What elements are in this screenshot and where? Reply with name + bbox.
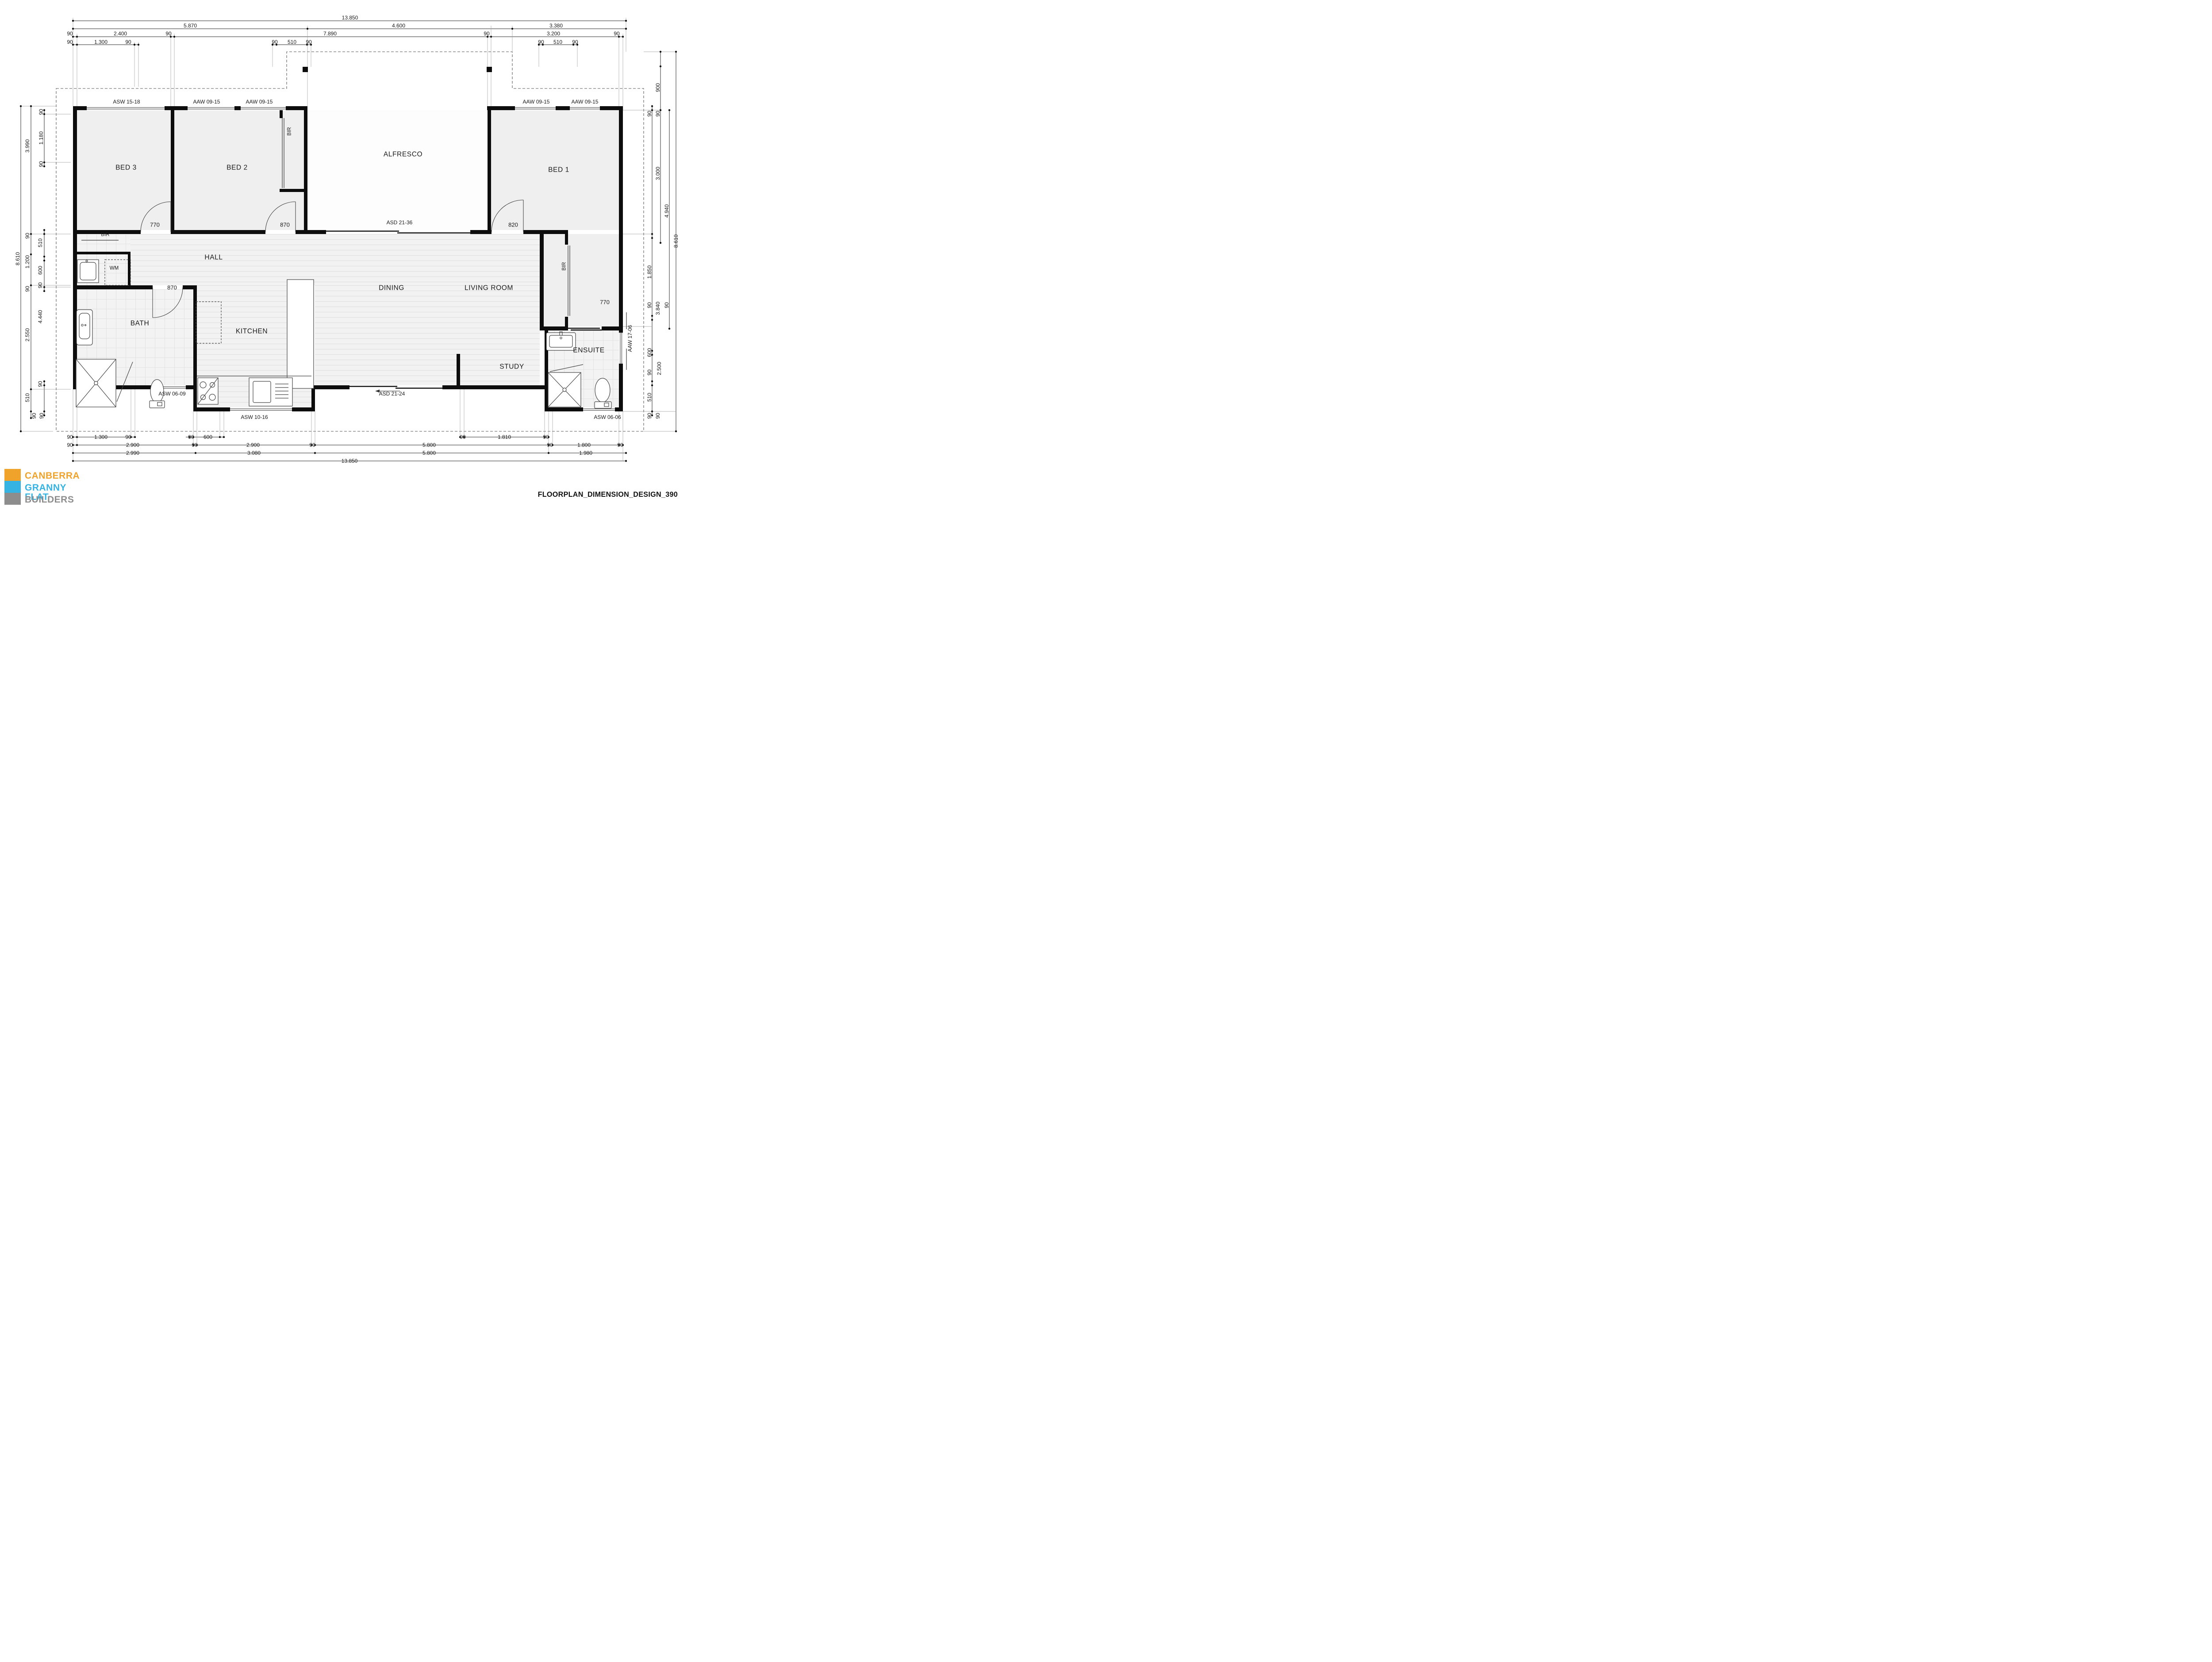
window-label-aaw-09-15: AAW 09-15 <box>572 99 599 104</box>
logo-block-blue <box>4 481 21 493</box>
dim-label-90: 90 <box>647 369 652 375</box>
annotation-layer: BED 3BED 2ALFRESCOBED 1HALLDININGLIVING … <box>0 0 684 507</box>
dim-label-2-900: 2.900 <box>246 442 260 448</box>
dim-label-900: 900 <box>655 83 661 92</box>
dim-label-1-800: 1.800 <box>577 442 591 448</box>
dim-label-3-380: 3.380 <box>549 23 563 28</box>
dim-label-90: 90 <box>547 442 553 448</box>
room-label-study: STUDY <box>499 363 524 370</box>
dim-label-90: 90 <box>306 39 311 45</box>
window-label-asd-21-24: ASD 21-24 <box>379 391 405 396</box>
dim-label-600: 600 <box>38 266 43 275</box>
window-label-aaw-09-15: AAW 09-15 <box>193 99 220 104</box>
door-label-820: 820 <box>508 222 518 228</box>
room-label-bed-2: BED 2 <box>227 164 248 171</box>
door-label-870: 870 <box>280 222 290 228</box>
logo-line-3: BUILDERS <box>25 495 74 504</box>
dim-label-4-940: 4.940 <box>664 204 669 218</box>
dim-label-90: 90 <box>460 434 465 440</box>
dim-label-90: 90 <box>309 442 315 448</box>
dim-label-3-990: 3.990 <box>25 139 30 153</box>
dim-label-5-800: 5.800 <box>422 450 436 456</box>
room-label-bed-3: BED 3 <box>115 164 137 171</box>
room-label-dining: DINING <box>379 284 404 292</box>
dim-label-90: 90 <box>572 39 578 45</box>
dim-label-90: 90 <box>614 31 619 36</box>
dim-label-90: 90 <box>538 39 544 45</box>
dim-label-510: 510 <box>553 39 562 45</box>
dim-label-2-500: 2.500 <box>657 362 662 375</box>
room-label-bed-1: BED 1 <box>548 166 569 173</box>
dim-label-90: 90 <box>664 302 669 308</box>
dim-label-90: 90 <box>647 111 652 116</box>
window-label-aaw-09-15: AAW 09-15 <box>246 99 273 104</box>
dim-label-90: 90 <box>67 31 73 36</box>
window-label-aaw-17-06: AAW 17-06 <box>627 325 633 352</box>
dim-label-90: 90 <box>272 39 277 45</box>
dim-label-90: 90 <box>125 434 131 440</box>
dim-label-90: 90 <box>39 413 44 418</box>
dim-label-4-600: 4.600 <box>392 23 405 28</box>
dim-label-1-180: 1.180 <box>38 131 44 145</box>
dim-label-600: 600 <box>204 434 212 440</box>
dim-label-5-800: 5.800 <box>422 442 436 448</box>
dim-label-510: 510 <box>25 393 30 402</box>
dim-label-3-200: 3.200 <box>547 31 560 36</box>
floorplan-page: BED 3BED 2ALFRESCOBED 1HALLDININGLIVING … <box>0 0 684 507</box>
dim-label-90: 90 <box>647 413 652 418</box>
dim-label-90: 90 <box>165 31 171 36</box>
dim-label-90: 90 <box>647 302 652 308</box>
logo-block-gray <box>4 493 21 505</box>
dim-label-3-000: 3.000 <box>655 167 661 180</box>
dim-label-90: 90 <box>655 413 661 418</box>
fixture-label-bir: BIR <box>101 232 109 238</box>
dim-label-1-980: 1.980 <box>579 450 592 456</box>
dim-label-90: 90 <box>484 31 489 36</box>
window-label-asd-21-36: ASD 21-36 <box>387 220 413 225</box>
dim-label-90: 90 <box>38 161 44 167</box>
dim-label-8-610: 8.610 <box>673 234 679 248</box>
dim-label-510: 510 <box>647 393 652 402</box>
window-label-asw-06-09: ASW 06-09 <box>158 391 185 396</box>
drawing-title: FLOORPLAN_DIMENSION_DESIGN_390 <box>517 490 678 499</box>
dim-label-90: 90 <box>617 442 623 448</box>
room-label-bath: BATH <box>131 320 150 327</box>
room-label-hall: HALL <box>204 254 223 261</box>
dim-label-1-300: 1.300 <box>94 39 108 45</box>
fixture-label-bir: BIR <box>287 127 292 135</box>
door-label-870: 870 <box>167 285 177 291</box>
dim-label-8-610: 8.610 <box>15 252 20 265</box>
dim-label-90: 90 <box>38 109 44 115</box>
dim-label-1-300: 1.300 <box>94 434 108 440</box>
room-label-ensuite: ENSUITE <box>573 347 604 354</box>
window-label-asw-06-06: ASW 06-06 <box>594 415 621 420</box>
room-label-alfresco: ALFRESCO <box>384 151 422 158</box>
dim-label-90: 90 <box>655 111 661 116</box>
dim-label-1-200: 1.200 <box>25 255 30 269</box>
room-label-living-room: LIVING ROOM <box>465 284 513 292</box>
dim-label-90: 90 <box>38 282 43 288</box>
dim-label-3-080: 3.080 <box>247 450 261 456</box>
dim-label-7-890: 7.890 <box>323 31 337 36</box>
dim-label-90: 90 <box>125 39 131 45</box>
door-label-770: 770 <box>600 299 610 305</box>
dim-label-13-850: 13.850 <box>342 458 358 464</box>
dim-label-510: 510 <box>288 39 296 45</box>
room-label-kitchen: KITCHEN <box>236 328 268 335</box>
dim-label-3-840: 3.840 <box>655 302 661 315</box>
dim-label-90: 90 <box>67 442 73 448</box>
dim-label-2-550: 2.550 <box>25 328 30 342</box>
window-label-asw-15-18: ASW 15-18 <box>113 99 140 104</box>
dim-label-90: 90 <box>188 434 194 440</box>
dim-label-90: 90 <box>543 434 549 440</box>
dim-label-2-990: 2.990 <box>126 450 139 456</box>
dim-label-90: 90 <box>67 434 73 440</box>
dim-label-4-440: 4.440 <box>38 310 43 323</box>
dim-label-90: 90 <box>67 39 73 45</box>
dim-label-13-850: 13.850 <box>342 15 358 20</box>
dim-label-2-900: 2.900 <box>126 442 139 448</box>
window-label-asw-10-16: ASW 10-16 <box>241 415 268 420</box>
dim-label-90: 90 <box>38 381 43 387</box>
logo-line-1: CANBERRA <box>25 471 80 480</box>
fixture-label-wm: WM <box>110 266 119 271</box>
window-label-aaw-09-15: AAW 09-15 <box>523 99 550 104</box>
dim-label-600: 600 <box>647 348 652 357</box>
dim-label-90: 90 <box>31 413 37 418</box>
door-label-770: 770 <box>150 222 160 228</box>
fixture-label-bir: BIR <box>562 262 567 270</box>
dim-label-90: 90 <box>192 442 197 448</box>
dim-label-1-810: 1.810 <box>498 434 511 440</box>
dim-label-1-850: 1.850 <box>647 265 652 279</box>
logo-block-orange <box>4 469 21 481</box>
dim-label-5-870: 5.870 <box>184 23 197 28</box>
dim-label-510: 510 <box>38 238 43 247</box>
dim-label-2-400: 2.400 <box>114 31 127 36</box>
dim-label-90: 90 <box>25 233 30 238</box>
dim-label-90: 90 <box>25 286 30 292</box>
